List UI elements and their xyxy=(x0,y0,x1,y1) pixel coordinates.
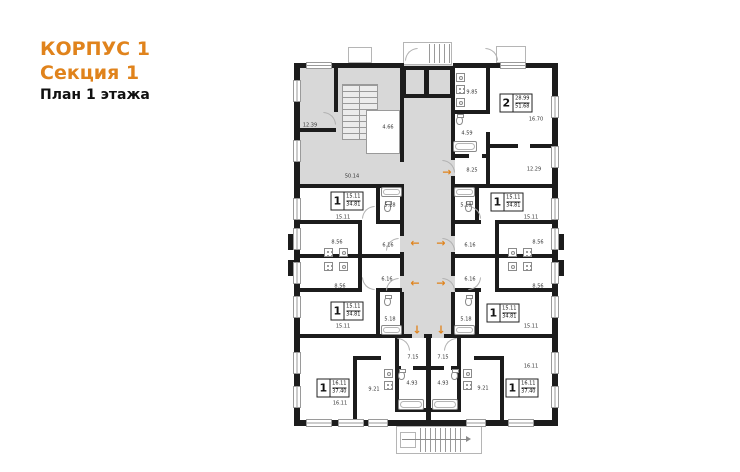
stair-stringer xyxy=(359,84,360,140)
room-area-label: 6.16 xyxy=(464,244,475,249)
bathtub-icon xyxy=(381,187,402,197)
window xyxy=(551,386,559,408)
apartment-tag: 115.1134.81 xyxy=(331,302,364,321)
room-area-label: 5.18 xyxy=(460,318,471,323)
porch-direction-arrowhead xyxy=(466,436,471,442)
toilet-icon xyxy=(456,116,463,125)
wall-segment xyxy=(431,366,444,370)
stove-icon xyxy=(324,262,333,271)
apartment-total-area: 34.81 xyxy=(506,203,520,210)
bathtub-icon xyxy=(454,325,475,335)
room-area-label: 12.29 xyxy=(527,168,541,173)
door-swing xyxy=(362,206,375,219)
apartment-areas: 15.1134.81 xyxy=(344,303,362,320)
bathtub-icon xyxy=(381,325,402,335)
window xyxy=(551,146,559,168)
sink-icon xyxy=(508,248,517,257)
window xyxy=(551,262,559,284)
window xyxy=(293,352,301,374)
apartment-rooms-count: 1 xyxy=(507,380,520,397)
wall-segment xyxy=(376,184,380,224)
room-area-label: 6.16 xyxy=(382,244,393,249)
apartment-living-area: 16.11 xyxy=(332,381,346,389)
bathtub-icon xyxy=(398,399,424,410)
room-area-label: 7.15 xyxy=(437,356,448,361)
utility-room xyxy=(366,110,400,154)
apartment-tag: 116.1137.40 xyxy=(317,379,350,398)
side-porch xyxy=(348,47,372,63)
sink-icon xyxy=(463,369,472,378)
stove-icon xyxy=(324,248,333,257)
window xyxy=(306,62,332,69)
room-area-label: 9.21 xyxy=(477,387,488,392)
apartment-areas: 28.9951.68 xyxy=(513,95,531,112)
door-swing xyxy=(444,338,457,351)
bathtub-icon xyxy=(453,141,477,152)
bathtub-icon xyxy=(432,399,458,410)
wall-segment xyxy=(482,154,488,158)
apartment-rooms-count: 1 xyxy=(488,305,501,322)
wall-segment xyxy=(400,68,404,162)
window xyxy=(293,262,301,284)
apartment-total-area: 37.40 xyxy=(332,389,346,396)
room-area-label: 8.56 xyxy=(532,285,543,290)
apartment-rooms-count: 1 xyxy=(332,303,345,320)
window xyxy=(551,96,559,118)
apartment-total-area: 34.81 xyxy=(502,314,516,321)
elevator-shaft xyxy=(429,70,450,94)
room-area-label: 4.59 xyxy=(461,132,472,137)
sink-icon xyxy=(456,73,465,82)
door-swing xyxy=(397,338,410,351)
wall-segment xyxy=(495,220,558,224)
apartment-rooms-count: 1 xyxy=(492,194,505,211)
apartment-living-area: 15.11 xyxy=(346,194,360,202)
window xyxy=(338,419,364,427)
entrance-arrow: ↓ xyxy=(436,325,445,336)
door-swing xyxy=(362,277,375,290)
apartment-areas: 15.1134.81 xyxy=(500,305,518,322)
apartment-total-area: 37.40 xyxy=(521,389,535,396)
stove-icon xyxy=(523,262,532,271)
apartment-areas: 15.1134.81 xyxy=(344,193,362,210)
bathtub-icon xyxy=(454,187,475,197)
entrance-arrow: → xyxy=(436,278,445,289)
wall-segment xyxy=(353,356,381,360)
stove-icon xyxy=(456,85,465,94)
apartment-living-area: 28.99 xyxy=(515,96,529,104)
stove-icon xyxy=(463,381,472,390)
room-area-label: 15.11 xyxy=(336,325,350,330)
room-area-label: 6.16 xyxy=(381,278,392,283)
room-area-label: 4.66 xyxy=(382,126,393,131)
side-porch xyxy=(496,46,526,63)
room-area-label: 5.18 xyxy=(384,204,395,209)
apartment-total-area: 51.68 xyxy=(515,104,529,111)
window xyxy=(293,140,301,162)
apartment-rooms-count: 1 xyxy=(318,380,331,397)
toilet-icon xyxy=(398,371,405,380)
wall-segment xyxy=(475,288,479,334)
wall-segment xyxy=(488,144,518,148)
window xyxy=(551,198,559,220)
room-area-label: 5.18 xyxy=(384,318,395,323)
entrance-arrow: ← xyxy=(410,278,419,289)
apartment-tag: 115.1134.81 xyxy=(491,193,524,212)
entrance-arrow: → xyxy=(442,167,451,178)
apartment-areas: 16.1137.40 xyxy=(330,380,348,397)
window xyxy=(293,80,301,102)
wall-segment xyxy=(495,220,499,292)
sink-icon xyxy=(508,262,517,271)
room-area-label: 9.85 xyxy=(466,91,477,96)
sink-icon xyxy=(339,262,348,271)
elevator-shaft xyxy=(406,70,424,94)
toilet-icon xyxy=(451,371,458,380)
floor-plan: 12.394.6650.149.854.598.2516.7012.2915.1… xyxy=(0,0,740,472)
window xyxy=(293,386,301,408)
room-area-label: 8.56 xyxy=(331,241,342,246)
window xyxy=(293,228,301,250)
sink-icon xyxy=(456,98,465,107)
room-area-label: 16.70 xyxy=(529,118,543,123)
window xyxy=(500,62,526,69)
entrance-arrow: → xyxy=(436,238,445,249)
apartment-living-area: 15.11 xyxy=(346,304,360,312)
sink-icon xyxy=(339,248,348,257)
wall-segment xyxy=(353,356,357,420)
wall-segment xyxy=(334,68,338,112)
apartment-areas: 16.1137.40 xyxy=(519,380,537,397)
room-area-label: 15.11 xyxy=(524,325,538,330)
floor-plan-page: КОРПУС 1 Секция 1 План 1 этажа 12.394.66… xyxy=(0,0,740,472)
wall-segment xyxy=(500,356,504,420)
apartment-tag: 115.1134.81 xyxy=(331,192,364,211)
apartment-rooms-count: 2 xyxy=(501,95,514,112)
room-area-label: 4.93 xyxy=(406,382,417,387)
wall-segment xyxy=(495,288,558,292)
room-area-label: 16.11 xyxy=(524,365,538,370)
room-area-label: 16.11 xyxy=(333,402,347,407)
room-area-label: 15.11 xyxy=(524,216,538,221)
room-area-label: 50.14 xyxy=(345,175,359,180)
stove-icon xyxy=(384,381,393,390)
room-area-label: 12.39 xyxy=(303,124,317,129)
wall-segment xyxy=(294,288,362,292)
wall-segment xyxy=(294,220,362,224)
vestibule-stair-hatch xyxy=(429,44,450,63)
wall-segment xyxy=(453,254,558,258)
apartment-tag: 116.1137.40 xyxy=(506,379,539,398)
apartment-tag: 228.9951.68 xyxy=(500,94,533,113)
room-area-label: 15.11 xyxy=(336,216,350,221)
window xyxy=(466,419,486,427)
window xyxy=(293,296,301,318)
apartment-living-area: 15.11 xyxy=(502,306,516,314)
apartment-living-area: 15.11 xyxy=(506,195,520,203)
sink-icon xyxy=(384,369,393,378)
room-area-label: 6.16 xyxy=(464,278,475,283)
entrance-arrow: ← xyxy=(410,238,419,249)
window xyxy=(551,296,559,318)
room-area-label: 4.93 xyxy=(437,382,448,387)
toilet-icon xyxy=(465,297,472,306)
room-area-label: 7.15 xyxy=(407,356,418,361)
apartment-total-area: 34.81 xyxy=(346,312,360,319)
apartment-living-area: 16.11 xyxy=(521,381,535,389)
porch-direction-line xyxy=(402,439,466,440)
stove-icon xyxy=(523,248,532,257)
wall-segment xyxy=(486,68,490,114)
wall-segment xyxy=(402,334,412,338)
wall-segment xyxy=(413,366,426,370)
apartment-total-area: 34.81 xyxy=(346,202,360,209)
window xyxy=(551,228,559,250)
porch-landing xyxy=(400,432,416,448)
room-area-label: 8.56 xyxy=(334,285,345,290)
window xyxy=(368,419,388,427)
window xyxy=(293,198,301,220)
window xyxy=(508,419,534,427)
wall-segment xyxy=(294,128,336,132)
room-area-label: 8.56 xyxy=(532,241,543,246)
apartment-rooms-count: 1 xyxy=(332,193,345,210)
window xyxy=(551,352,559,374)
common-area xyxy=(400,65,455,338)
wall-segment xyxy=(294,254,402,258)
wall-segment xyxy=(358,220,362,292)
entrance-arrow: ↓ xyxy=(412,325,421,336)
room-area-label: 8.25 xyxy=(466,169,477,174)
wall-segment xyxy=(376,288,380,334)
wall-segment xyxy=(455,154,469,158)
room-area-label: 9.21 xyxy=(368,388,379,393)
apartment-tag: 115.1134.81 xyxy=(487,304,520,323)
toilet-icon xyxy=(384,297,391,306)
window xyxy=(306,419,332,427)
wall-segment xyxy=(486,132,490,184)
room-area-label: 5.18 xyxy=(460,204,471,209)
porch-stair-hatch xyxy=(420,428,464,452)
apartment-areas: 15.1134.81 xyxy=(504,194,522,211)
wall-segment xyxy=(474,356,504,360)
